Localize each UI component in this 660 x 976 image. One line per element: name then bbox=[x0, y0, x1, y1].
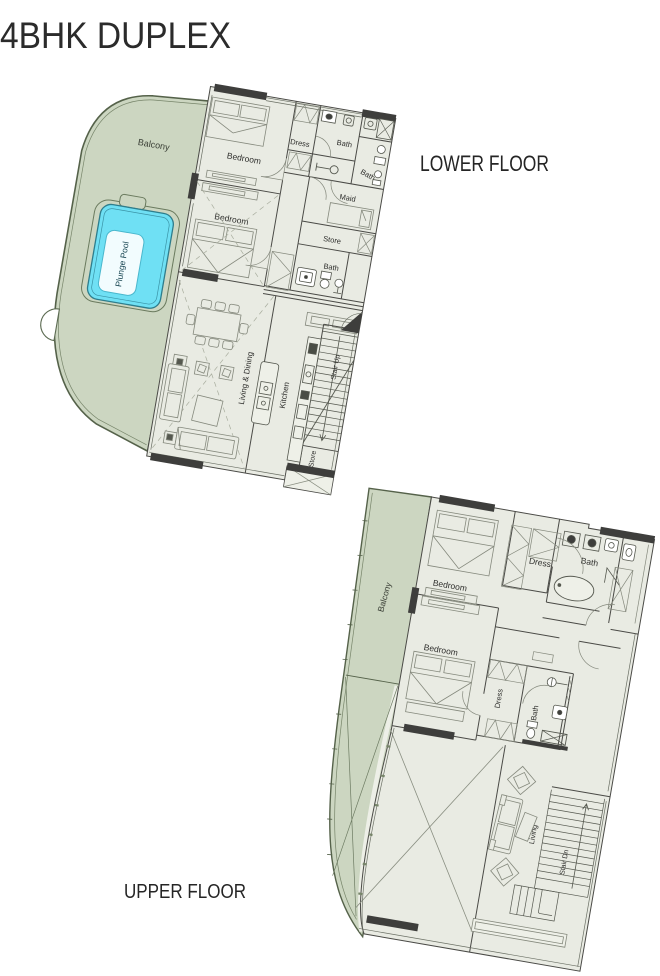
svg-text:UPPER FLOOR: UPPER FLOOR bbox=[124, 880, 246, 903]
svg-text:LOWER FLOOR: LOWER FLOOR bbox=[420, 151, 549, 176]
svg-text:4BHK DUPLEX: 4BHK DUPLEX bbox=[0, 15, 231, 56]
